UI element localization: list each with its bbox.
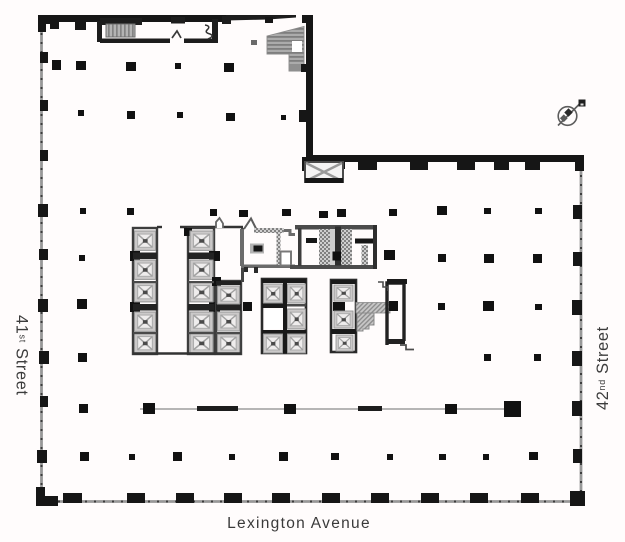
svg-text:42nd Street: 42nd Street	[594, 326, 612, 410]
svg-text:41st Street: 41st Street	[13, 315, 31, 396]
svg-text:Lexington Avenue: Lexington Avenue	[227, 515, 371, 532]
